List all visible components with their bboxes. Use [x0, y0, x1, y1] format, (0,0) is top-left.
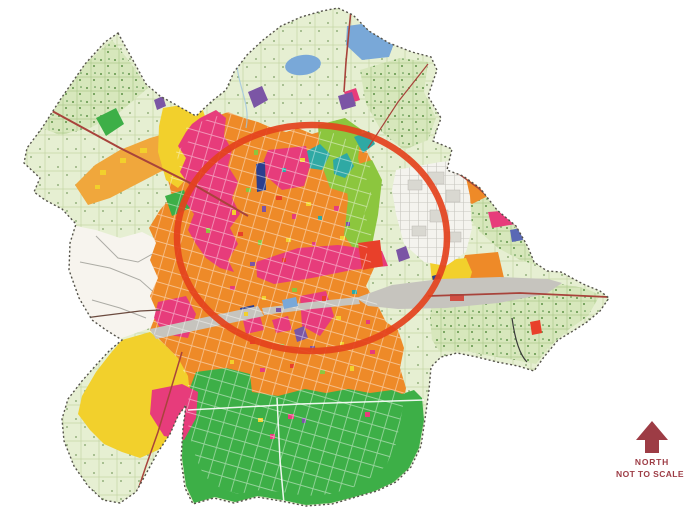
north-arrow-icon [636, 421, 668, 453]
green-patch-north-small [230, 34, 246, 50]
compass-north-label: NORTH [635, 457, 669, 467]
master-plan-map: NORTH NOT TO SCALE [0, 0, 685, 514]
north-compass: NORTH NOT TO SCALE [616, 421, 684, 479]
map-canvas: NORTH NOT TO SCALE [0, 0, 685, 514]
compass-scale-note: NOT TO SCALE [616, 469, 684, 479]
